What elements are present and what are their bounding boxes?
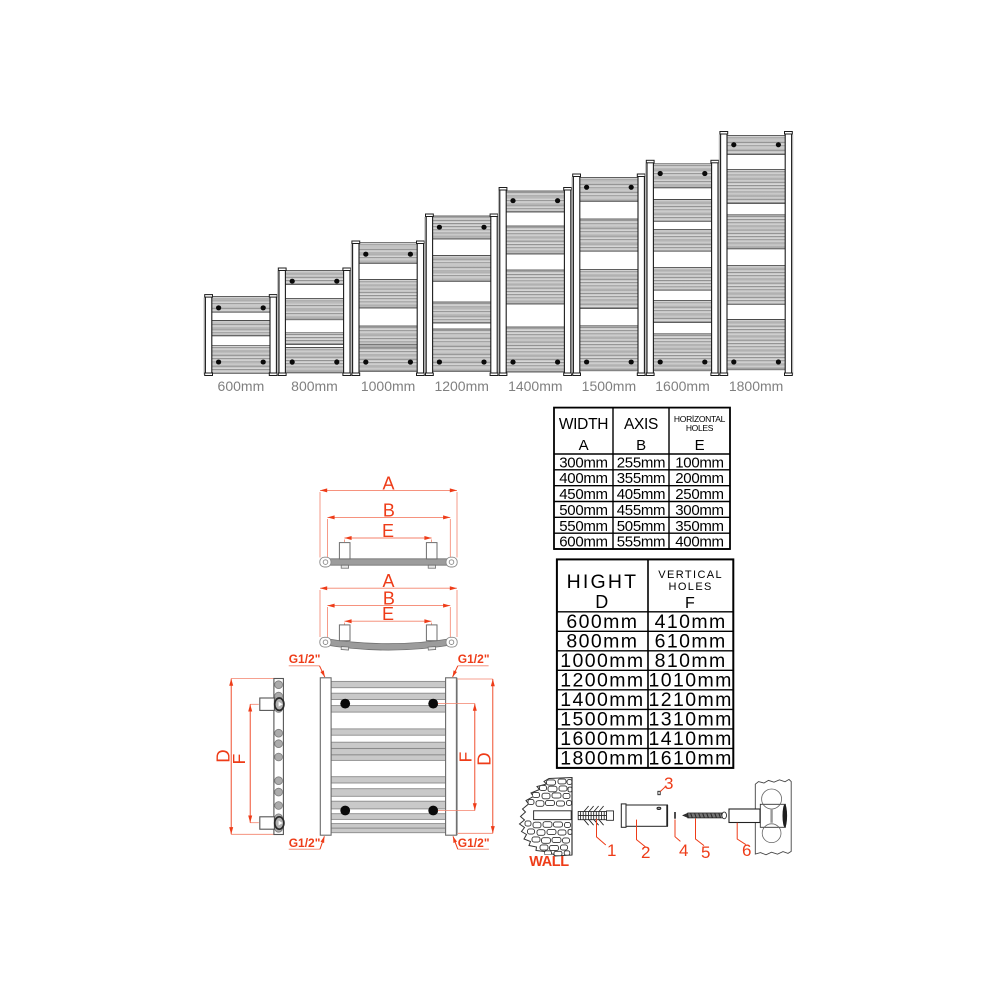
svg-text:AXIS: AXIS xyxy=(624,416,658,433)
svg-text:400mm: 400mm xyxy=(675,534,724,551)
svg-text:B: B xyxy=(636,437,646,454)
svg-text:300mm: 300mm xyxy=(559,454,608,471)
svg-text:800mm: 800mm xyxy=(291,378,338,394)
svg-text:F: F xyxy=(685,595,696,612)
svg-text:HOLES: HOLES xyxy=(686,423,714,433)
svg-text:A: A xyxy=(579,437,589,454)
svg-text:G1/2": G1/2" xyxy=(458,652,490,666)
svg-text:E: E xyxy=(382,604,394,624)
svg-text:E: E xyxy=(382,521,394,541)
svg-text:1500mm: 1500mm xyxy=(582,378,636,394)
svg-text:F: F xyxy=(456,752,476,763)
svg-text:500mm: 500mm xyxy=(559,502,608,519)
svg-text:6: 6 xyxy=(742,841,751,860)
svg-text:4: 4 xyxy=(679,841,688,860)
svg-text:1000mm: 1000mm xyxy=(361,378,415,394)
svg-text:450mm: 450mm xyxy=(559,486,608,503)
svg-text:455mm: 455mm xyxy=(617,502,666,519)
svg-text:350mm: 350mm xyxy=(675,518,724,535)
svg-text:1: 1 xyxy=(607,841,616,860)
svg-text:505mm: 505mm xyxy=(617,518,666,535)
svg-text:E: E xyxy=(695,437,705,454)
svg-text:1600mm: 1600mm xyxy=(655,378,709,394)
svg-text:1800mm: 1800mm xyxy=(560,748,644,770)
svg-text:5: 5 xyxy=(701,843,710,862)
svg-text:1800mm: 1800mm xyxy=(729,378,783,394)
svg-text:550mm: 550mm xyxy=(559,518,608,535)
svg-text:405mm: 405mm xyxy=(617,486,666,503)
svg-text:355mm: 355mm xyxy=(617,470,666,487)
svg-text:F: F xyxy=(229,754,249,765)
svg-text:D: D xyxy=(474,752,495,765)
svg-text:400mm: 400mm xyxy=(559,470,608,487)
svg-text:200mm: 200mm xyxy=(675,470,724,487)
svg-text:1400mm: 1400mm xyxy=(508,378,562,394)
svg-text:250mm: 250mm xyxy=(675,486,724,503)
svg-text:WIDTH: WIDTH xyxy=(559,416,608,433)
svg-text:HIGHT: HIGHT xyxy=(567,571,639,593)
svg-text:VERTICAL: VERTICAL xyxy=(658,569,723,581)
svg-text:1610mm: 1610mm xyxy=(649,748,733,770)
svg-text:300mm: 300mm xyxy=(675,502,724,519)
svg-text:2: 2 xyxy=(641,843,650,862)
svg-text:555mm: 555mm xyxy=(617,534,666,551)
svg-text:100mm: 100mm xyxy=(675,454,724,471)
svg-text:600mm: 600mm xyxy=(218,378,265,394)
svg-text:WALL: WALL xyxy=(529,854,569,870)
svg-text:B: B xyxy=(383,500,395,520)
svg-text:600mm: 600mm xyxy=(559,534,608,551)
svg-text:1200mm: 1200mm xyxy=(434,378,488,394)
svg-text:G1/2": G1/2" xyxy=(289,652,321,666)
svg-text:G1/2": G1/2" xyxy=(289,836,321,850)
svg-text:3: 3 xyxy=(664,774,673,793)
svg-text:255mm: 255mm xyxy=(617,454,666,471)
svg-text:D: D xyxy=(595,592,609,612)
svg-text:HOLES: HOLES xyxy=(669,581,713,593)
svg-text:A: A xyxy=(382,473,394,493)
svg-text:G1/2": G1/2" xyxy=(458,836,490,850)
